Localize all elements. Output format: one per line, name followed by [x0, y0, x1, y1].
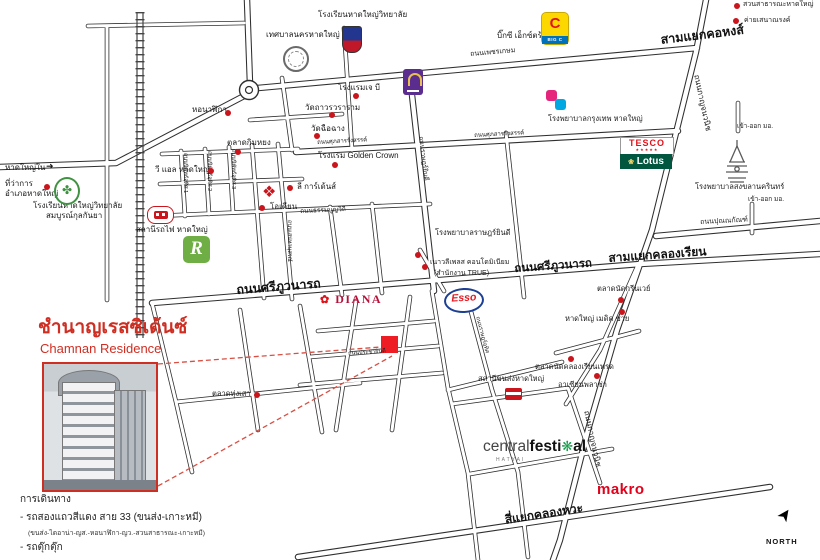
- poi-dot: [594, 373, 600, 379]
- centralfestival-logo-part1: central: [483, 438, 530, 455]
- tesco-logo-stars: ★★★★★: [621, 148, 673, 152]
- hotel-title-english: Chamnan Residence: [40, 342, 161, 356]
- hotel-photo: [42, 362, 158, 492]
- directions-line3: - รถตุ๊กตุ๊ก: [20, 540, 205, 555]
- lotus-logo: ❀ Lotus: [620, 154, 672, 169]
- centralfestival-tree-icon: ❋: [561, 438, 573, 454]
- robinson-logo-icon: R: [183, 236, 210, 263]
- poi-bus-terminal: สถานีขนส่งหาดใหญ่: [478, 375, 544, 383]
- north-label: NORTH: [766, 537, 798, 546]
- bigc-logo-bar: BIG C: [542, 36, 568, 44]
- poi-vl-hatyai: วี แอล หาดใหญ่: [155, 166, 210, 175]
- poi-golden-crown: โรงแรม Golden Crown: [318, 152, 399, 161]
- poi-dot: [208, 168, 214, 174]
- poi-dot: [353, 93, 359, 99]
- poi-army-camp: ค่ายเสนาณรงค์: [744, 17, 790, 25]
- poi-dot: [734, 3, 740, 9]
- poi-odean: โอเดียน: [270, 203, 297, 212]
- poi-khlongrian-market: ตลาดนัดคลองเรียนเทรด: [535, 363, 614, 371]
- poi-kimyong-market: ตลาดกิมหยง: [227, 139, 271, 148]
- centralfestival-logo-sub: HATYAI: [496, 457, 525, 463]
- location-map: ชำนาญเรสซิเด้นซ์ Chamnan Residence สามแย…: [0, 0, 820, 560]
- poi-asian-plaza: อาเซียนพลาซ่า: [558, 381, 607, 389]
- poi-dot: [415, 252, 421, 258]
- psu-gate-north: เข้า-ออก มอ.: [737, 123, 773, 130]
- poi-greenway-market: ตลาดนัดกรีนเวย์: [597, 285, 650, 293]
- poi-district-office-line2: อำเภอหาดใหญ่: [5, 190, 58, 199]
- poi-dot: [332, 162, 338, 168]
- hotel-emblem-icon: [403, 69, 423, 95]
- municipality-seal-icon: [283, 46, 309, 72]
- hotel-photo-wing: [114, 390, 146, 488]
- poi-train-station: สถานีรถไฟ หาดใหญ่: [136, 226, 208, 235]
- poi-lee-gardens: ลี การ์เด้นส์: [297, 183, 336, 192]
- makro-logo: makro: [597, 481, 645, 498]
- poi-dot: [422, 264, 428, 270]
- road-nipat3: ถนนนิพัทธ์อุทิศ 3: [230, 149, 236, 189]
- school-emblem-icon: ✤: [54, 177, 80, 205]
- psu-crest-icon: [720, 138, 754, 186]
- diana-logo-text: DIANA: [335, 292, 382, 306]
- poi-rajyindee-hospital: โรงพยาบาลราษฎร์ยินดี: [435, 229, 510, 237]
- directions-line2: (ขนส่ง-ไดอาน่า-ญส.-หอนาฬิกา-ญว.-สวนสาธาร…: [28, 527, 205, 538]
- centralfestival-logo: centralfesti❋al: [483, 438, 586, 456]
- poi-naovalee-line2: (สำนักงาน TRUE): [434, 270, 489, 278]
- poi-dot: [733, 18, 739, 24]
- poi-dot: [254, 392, 260, 398]
- directions-line1: - รถสองแถวสีแดง สาย 33 (ขนส่ง-เกาะหมี): [20, 510, 205, 525]
- lotus-logo-text: Lotus: [637, 156, 664, 167]
- odean-emblem-icon: ❖: [262, 185, 276, 201]
- school-crest-icon: [342, 26, 362, 53]
- photo-callout-lines: [158, 347, 392, 486]
- hotel-photo-tower: [62, 382, 116, 488]
- road-hatyainai: หาดใหญ่ใน: [5, 164, 45, 173]
- bus-terminal-icon: [505, 388, 522, 400]
- hatyainai-arrow-icon: ➜: [46, 162, 54, 172]
- psu-gate-south: เข้า-ออก มอ.: [748, 196, 784, 203]
- poi-naovalee-line1: เนาวลีเพลส คอนโดมิเนียม: [430, 259, 509, 267]
- poi-dot: [225, 110, 231, 116]
- road-sanehanusorn: ถนนเสน่หานุสรณ์: [286, 220, 292, 262]
- poi-ysk-school-line1: โรงเรียนหาดใหญ่วิทยาลัย: [33, 202, 122, 211]
- poi-dot: [568, 356, 574, 362]
- tesco-logo: TESCO ★★★★★: [620, 137, 674, 155]
- poi-bigc: บิ๊กซี เอ็กซ์ตร้า: [497, 32, 546, 41]
- poi-hatyaiwit-school: โรงเรียนหาดใหญ่วิทยาลัย: [318, 11, 407, 20]
- poi-dot: [287, 185, 293, 191]
- poi-medic-sai: หาดใหญ่ เมดิค ซาย: [565, 315, 629, 323]
- poi-dot: [314, 133, 320, 139]
- centralfestival-logo-part2: festi: [530, 438, 562, 455]
- diana-flower-icon: ✿: [320, 294, 331, 306]
- poi-dot: [259, 205, 265, 211]
- poi-dot: [619, 309, 625, 315]
- poi-dot: [235, 149, 241, 155]
- poi-dot: [618, 297, 624, 303]
- railway-line: [137, 12, 143, 338]
- poi-jb-hotel: โรงแรมเจ บี: [338, 84, 380, 93]
- centralfestival-logo-part3: al: [573, 438, 586, 455]
- diana-logo: ✿ DIANA: [320, 292, 382, 307]
- poi-park: สวนสาธารณะหาดใหญ่: [743, 1, 814, 9]
- roundabout: [240, 81, 259, 100]
- bigc-logo-icon: C BIG C: [541, 12, 569, 45]
- poi-municipality: เทศบาลนครหาดใหญ่: [266, 31, 340, 40]
- poi-dot: [329, 112, 335, 118]
- poi-district-office-line1: ที่ว่าการ: [5, 180, 33, 189]
- poi-clock-tower: หอนาฬิกา: [192, 106, 227, 115]
- hotel-title-thai: ชำนาญเรสซิเด้นซ์: [38, 318, 187, 339]
- poi-dot: [44, 184, 50, 190]
- poi-thungsao-market: ตลาดทุ่งเสา: [212, 390, 251, 398]
- poi-bangkok-hospital: โรงพยาบาลกรุงเทพ หาดใหญ่: [548, 115, 643, 123]
- lotus-flower-icon: ❀: [628, 159, 634, 166]
- hotel-photo-ground: [44, 480, 156, 490]
- train-station-icon: [147, 206, 174, 224]
- poi-ysk-school-line2: สมบูรณ์กุลกันยา: [46, 212, 102, 221]
- bangkok-hospital-logo-icon: [555, 99, 566, 110]
- directions-heading: การเดินทาง: [20, 492, 205, 507]
- directions-note: การเดินทาง - รถสองแถวสีแดง สาย 33 (ขนส่ง…: [20, 492, 205, 557]
